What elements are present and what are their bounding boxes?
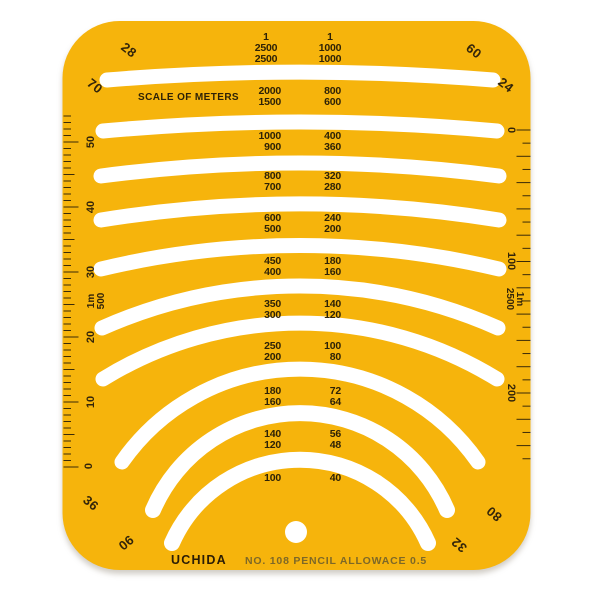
ratio-line: 2500 [504,288,514,310]
value: 40 [299,473,341,484]
right-ruler-label-200: 200 [505,384,517,402]
value: 64 [299,397,341,408]
value: 200 [299,224,341,235]
value: 180 [239,386,281,397]
ratio-line: 500 [97,293,107,310]
value: 350 [239,299,281,310]
left-ruler-label-20: 20 [85,331,97,343]
value: 500 [239,224,281,235]
value: 240 [299,213,341,224]
value: 700 [239,182,281,193]
model-label: NO. 108 PENCIL ALLOWACE 0.5 [245,555,427,567]
left-ruler-label-30: 30 [85,266,97,278]
slot-cutout-1 [107,72,493,80]
right-ruler-label-100: 100 [505,252,517,270]
value: 400 [299,131,341,142]
scale-header-left-line: 2500 [244,54,288,65]
value: 250 [239,341,281,352]
value: 180 [299,256,341,267]
left-ruler-label-40: 40 [85,201,97,213]
left-ruler-ratio: 1m 500 [87,293,107,310]
right-ruler-ratio: 1m 2500 [504,288,524,310]
value: 280 [299,182,341,193]
value: 48 [299,440,341,451]
value: 600 [239,213,281,224]
value-row-7: 250200 10080 [0,341,600,363]
value: 80 [299,352,341,363]
value: 360 [299,142,341,153]
value: 72 [299,386,341,397]
value: 2000 [239,86,281,97]
value: 100 [239,473,281,484]
value-row-4: 600500 240200 [0,213,600,235]
value: 140 [299,299,341,310]
left-ruler-label-10: 10 [85,396,97,408]
value: 120 [239,440,281,451]
value: 140 [239,429,281,440]
value: 200 [239,352,281,363]
value: 160 [239,397,281,408]
value: 300 [239,310,281,321]
scale-header-right: 1 1000 1000 [308,32,352,64]
value: 600 [299,97,341,108]
pivot-hole [285,521,307,543]
value: 160 [299,267,341,278]
template-photo: 1 2500 2500 1 1000 1000 SCALE OF METERS … [0,0,600,600]
value: 400 [239,267,281,278]
scale-header-right-line: 1000 [308,43,352,54]
value: 120 [299,310,341,321]
value: 56 [299,429,341,440]
value: 1500 [239,97,281,108]
value: 800 [299,86,341,97]
value: 320 [299,171,341,182]
left-ruler-label-0: 0 [83,463,95,469]
scale-header-left-line: 2500 [244,43,288,54]
value: 450 [239,256,281,267]
value-row-9: 140120 5648 [0,429,600,451]
value: 900 [239,142,281,153]
value: 1000 [239,131,281,142]
value-row-3: 800700 320280 [0,171,600,193]
value: 100 [299,341,341,352]
scale-header-right-line: 1000 [308,54,352,65]
right-ruler-label-0: 0 [505,127,517,133]
left-ruler-label-50: 50 [85,136,97,148]
brand-label: UCHIDA [171,553,227,567]
scale-header-left: 1 2500 2500 [244,32,288,64]
value: 800 [239,171,281,182]
ratio-line: 1m [514,288,524,310]
